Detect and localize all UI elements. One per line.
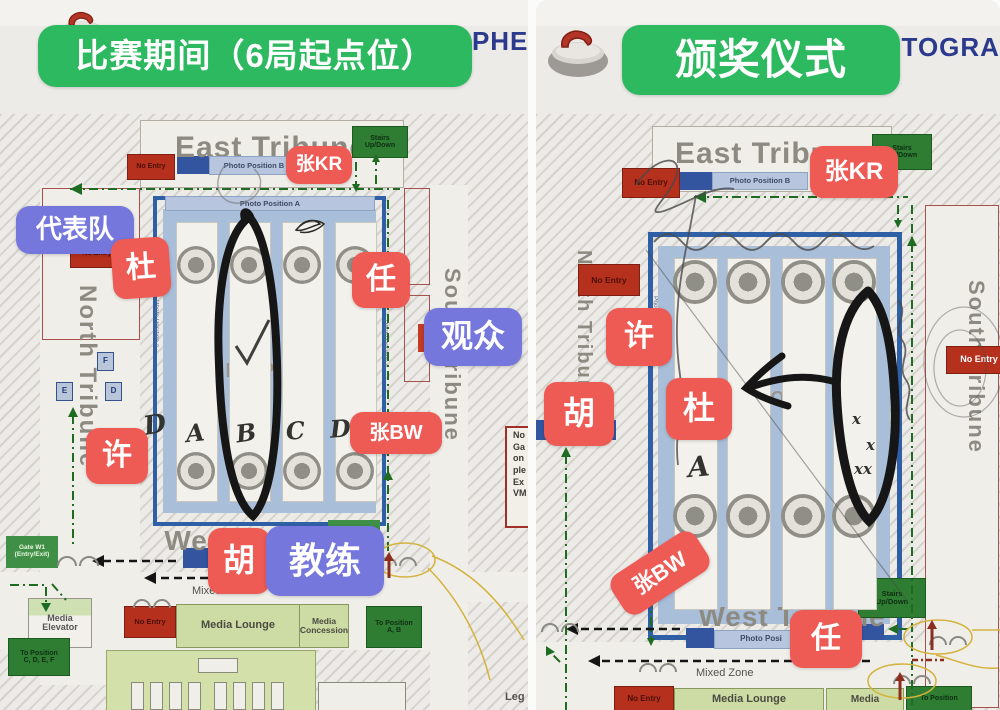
house-circle bbox=[283, 246, 321, 284]
seat-bar bbox=[188, 682, 201, 710]
house-circle bbox=[781, 260, 825, 304]
seat-bar bbox=[252, 682, 265, 710]
stairs-east: Stairs Up/Down bbox=[352, 126, 408, 158]
seat-bar bbox=[131, 682, 144, 710]
seat-bar bbox=[271, 682, 284, 710]
house-circle bbox=[336, 452, 374, 490]
gate-w1: Gate W1 (Entry/Exit) bbox=[6, 536, 58, 568]
house-circle bbox=[230, 246, 268, 284]
house-circle bbox=[673, 260, 717, 304]
banner-ceremony[interactable]: 颁奖仪式 bbox=[622, 25, 900, 95]
media-lounge: Media Lounge bbox=[176, 604, 300, 648]
seat-bar bbox=[169, 682, 182, 710]
house-circle bbox=[781, 494, 825, 538]
label-coach[interactable]: 教练 bbox=[266, 526, 384, 596]
label-zhang-kr[interactable]: 张KR bbox=[286, 146, 352, 184]
label-xu[interactable]: 许 bbox=[606, 308, 672, 366]
note-box: No Ga on ple Ex VM bbox=[505, 426, 528, 528]
room-box bbox=[318, 682, 406, 710]
media-concession: Media Concession bbox=[299, 604, 349, 648]
to-position-ab: To Position A, B bbox=[366, 606, 422, 648]
house-circle bbox=[283, 452, 321, 490]
photo-position-b-bar: Photo Position B bbox=[712, 172, 808, 190]
house-circle bbox=[726, 494, 770, 538]
house-circle bbox=[230, 452, 268, 490]
banner-competition[interactable]: 比赛期间（6局起点位） bbox=[38, 25, 472, 87]
no-entry-west: No Entry bbox=[124, 606, 176, 638]
photo-competition-map: 比赛期间（6局起点位）NAC MAP FOR PHOTOGRAPHERS张KR代… bbox=[0, 0, 528, 710]
no-entry-east: No Entry bbox=[622, 168, 680, 198]
to-position-cdef: To Position C, D, E, F bbox=[8, 638, 70, 676]
label-xu[interactable]: 许 bbox=[86, 428, 148, 484]
label-ren[interactable]: 任 bbox=[790, 610, 862, 668]
house-circle bbox=[177, 246, 215, 284]
ice-sheet bbox=[782, 258, 826, 610]
curling-stone-icon[interactable] bbox=[538, 22, 618, 84]
media-concession: Media bbox=[826, 688, 904, 710]
no-entry-east: No Entry bbox=[127, 154, 175, 180]
seat-bar bbox=[150, 682, 163, 710]
hand-x3: xx bbox=[854, 462, 880, 478]
camera-square-d: D bbox=[105, 382, 122, 401]
table bbox=[198, 658, 238, 673]
label-du[interactable]: 杜 bbox=[666, 378, 732, 440]
ice-sheet bbox=[727, 258, 771, 610]
seat-bar bbox=[233, 682, 246, 710]
label-zhang-kr[interactable]: 张KR bbox=[810, 146, 898, 198]
mixed-zone-label: Mixed Zone bbox=[696, 668, 780, 684]
no-entry-northwest: No Entry bbox=[578, 264, 640, 296]
no-entry-west: No Entry bbox=[614, 686, 674, 710]
camera-square-e: E bbox=[56, 382, 73, 401]
house-circle bbox=[177, 452, 215, 490]
hand-letter-c: C bbox=[285, 417, 309, 447]
hand-letter-b: B bbox=[234, 419, 260, 450]
house-circle bbox=[832, 260, 876, 304]
label-hu[interactable]: 胡 bbox=[544, 382, 614, 446]
seat-bar bbox=[214, 682, 227, 710]
no-entry-south: No Entry bbox=[946, 346, 1000, 374]
south-tribune-label: South Tribune bbox=[958, 280, 988, 510]
house-circle bbox=[726, 260, 770, 304]
photo-position-a-bar: Photo Position A bbox=[165, 196, 375, 211]
hand-x2: x bbox=[866, 438, 880, 454]
camera-square-f: F bbox=[97, 352, 114, 371]
hand-letter-a: A bbox=[687, 451, 716, 487]
legend-fragment: Leg bbox=[505, 692, 528, 708]
photo-ceremony-map: 颁奖仪式NAC MAP FOR PHOTOGRAPHERS张KR许胡杜张BW任E… bbox=[536, 0, 1000, 710]
label-ren[interactable]: 任 bbox=[352, 252, 410, 308]
to-position: To Position bbox=[906, 686, 972, 710]
house-circle bbox=[832, 494, 876, 538]
hand-letter-a: A bbox=[185, 419, 210, 449]
label-hu[interactable]: 胡 bbox=[208, 528, 270, 594]
photo-bar-segment bbox=[680, 172, 712, 190]
label-audience[interactable]: 观众 bbox=[424, 308, 522, 366]
ice-sheet bbox=[833, 258, 877, 610]
media-lounge: Media Lounge bbox=[674, 688, 824, 710]
label-du[interactable]: 杜 bbox=[110, 236, 172, 300]
hand-x1: x bbox=[852, 412, 866, 428]
label-zhang-bw[interactable]: 张BW bbox=[350, 412, 442, 454]
